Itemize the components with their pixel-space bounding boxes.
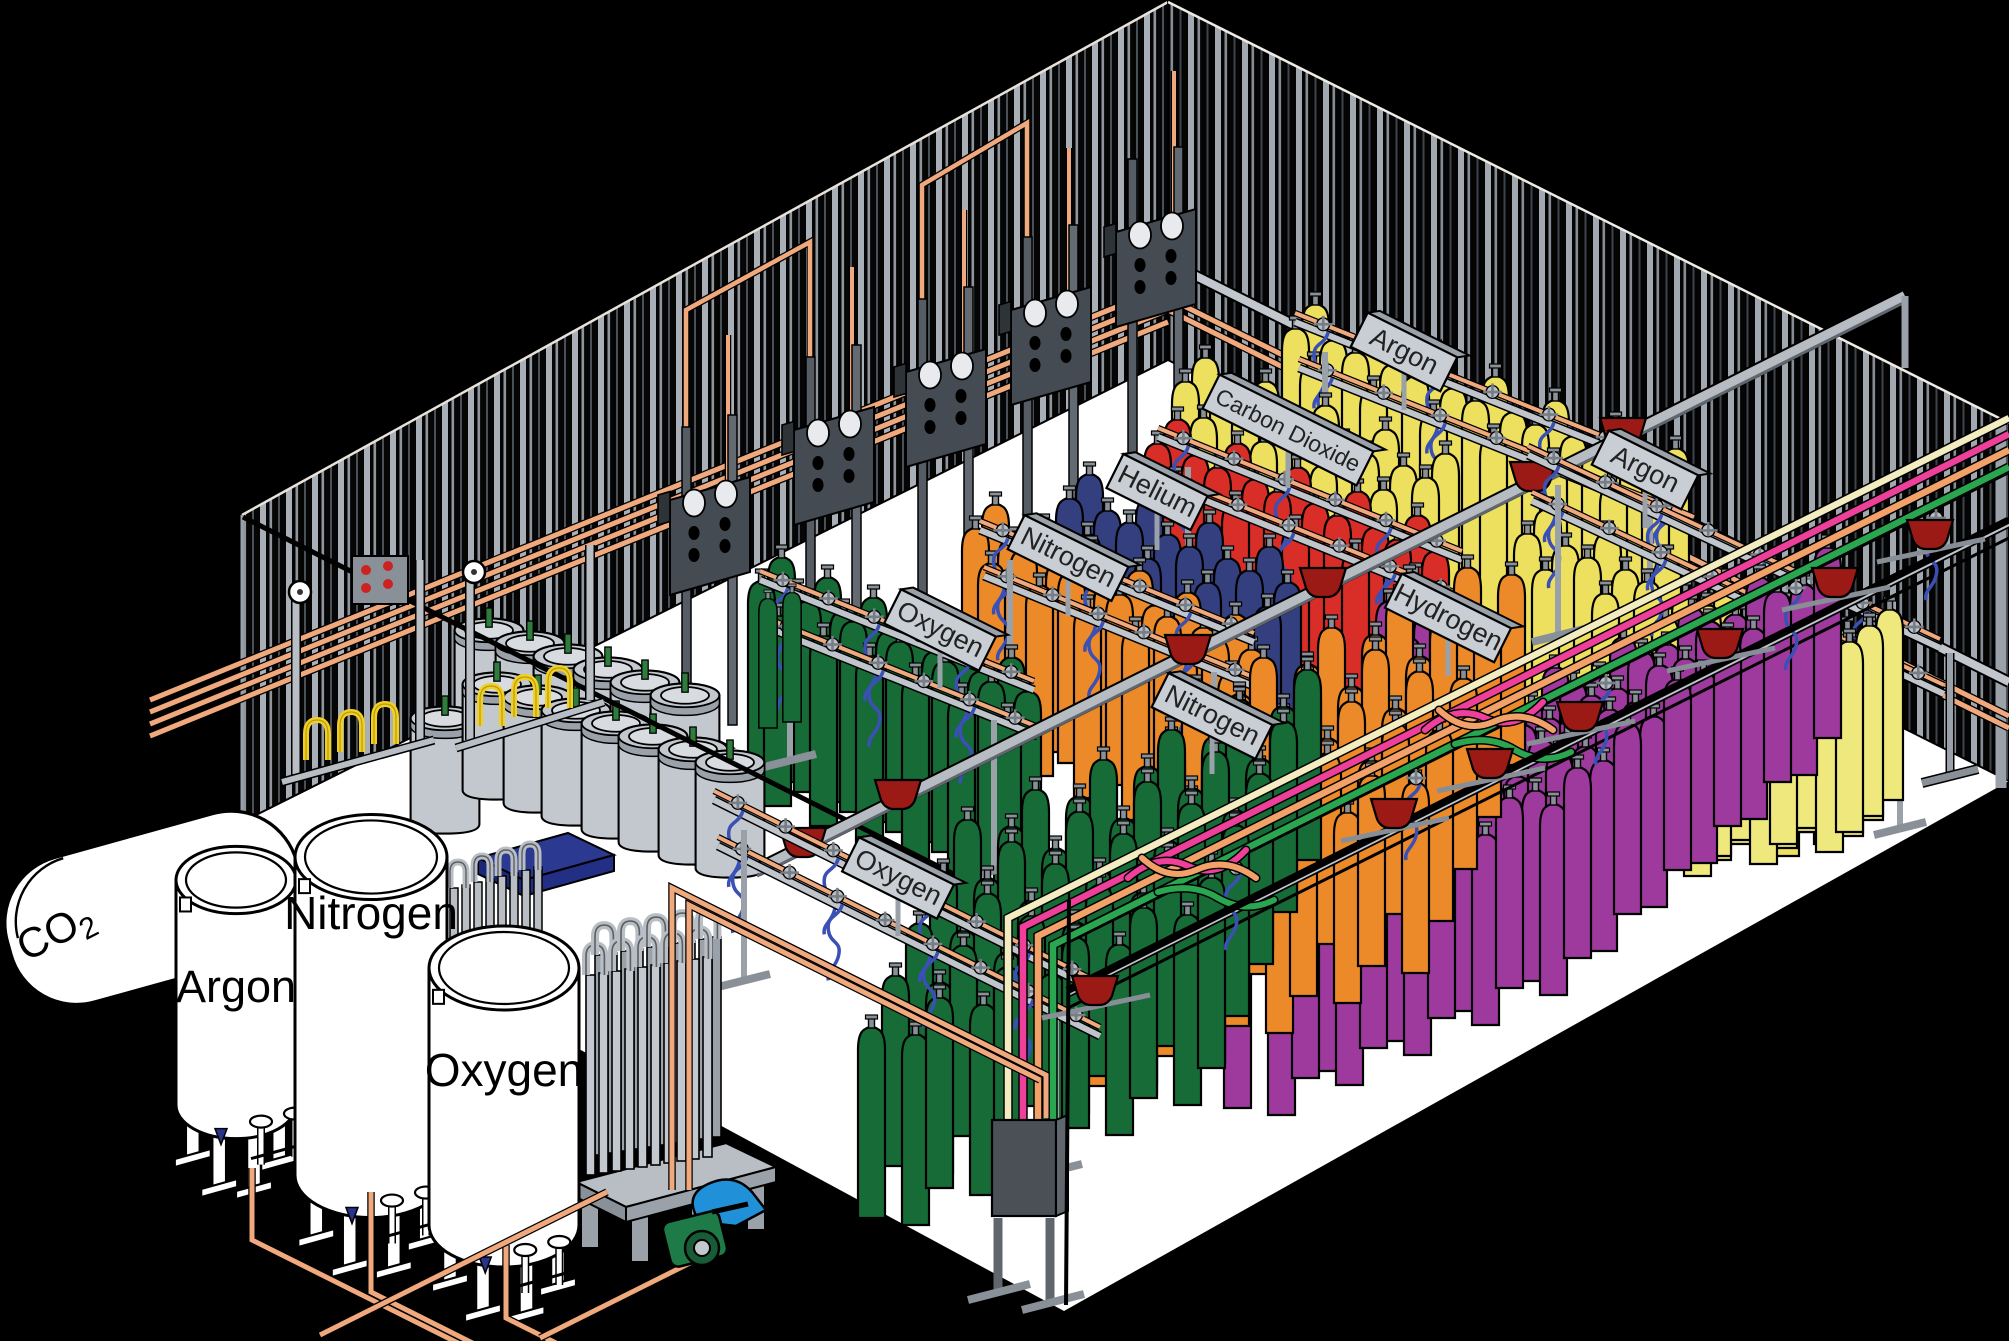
svg-text:Argon: Argon <box>176 961 296 1012</box>
svg-text:Oxygen: Oxygen <box>425 1044 584 1096</box>
svg-text:Nitrogen: Nitrogen <box>284 887 458 939</box>
